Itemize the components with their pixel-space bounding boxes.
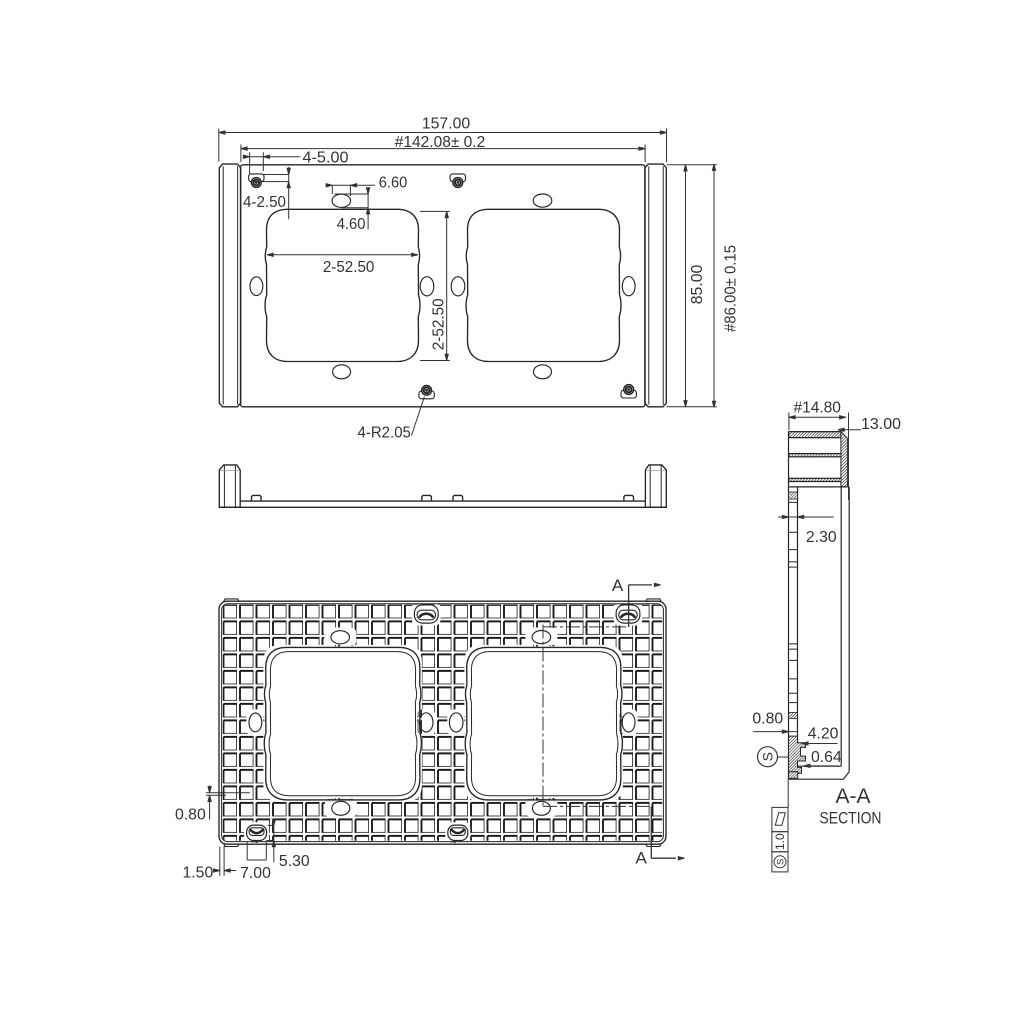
svg-text:2.30: 2.30 xyxy=(806,529,837,546)
svg-text:4.60: 4.60 xyxy=(337,216,366,233)
svg-text:0.64: 0.64 xyxy=(811,749,842,766)
svg-text:6.60: 6.60 xyxy=(379,174,408,191)
svg-text:5.30: 5.30 xyxy=(279,853,310,870)
svg-text:S: S xyxy=(776,859,787,865)
svg-text:2-52.50: 2-52.50 xyxy=(323,259,375,276)
svg-text:157.00: 157.00 xyxy=(422,116,471,133)
svg-text:1.0: 1.0 xyxy=(773,833,787,850)
svg-text:7.00: 7.00 xyxy=(240,865,271,882)
svg-text:2-52.50: 2-52.50 xyxy=(431,298,448,350)
svg-text:SECTION: SECTION xyxy=(820,809,882,828)
svg-text:1.50: 1.50 xyxy=(183,864,214,881)
svg-text:0.80: 0.80 xyxy=(752,710,783,727)
svg-text:#14.80: #14.80 xyxy=(793,400,841,417)
svg-text:A: A xyxy=(612,576,624,595)
svg-text:4-5.00: 4-5.00 xyxy=(303,150,349,167)
svg-text:S: S xyxy=(759,752,775,761)
svg-text:A-A: A-A xyxy=(835,785,870,808)
svg-text:#86.00± 0.15: #86.00± 0.15 xyxy=(722,245,739,332)
svg-text:#142.08± 0.2: #142.08± 0.2 xyxy=(395,134,486,151)
svg-text:4.20: 4.20 xyxy=(808,726,839,743)
svg-text:A: A xyxy=(636,848,648,867)
svg-text:0.80: 0.80 xyxy=(175,807,206,824)
svg-text:13.00: 13.00 xyxy=(861,416,901,433)
svg-text:4-2.50: 4-2.50 xyxy=(243,194,286,211)
svg-text:4-R2.05: 4-R2.05 xyxy=(358,424,412,441)
svg-text:85.00: 85.00 xyxy=(689,265,706,305)
